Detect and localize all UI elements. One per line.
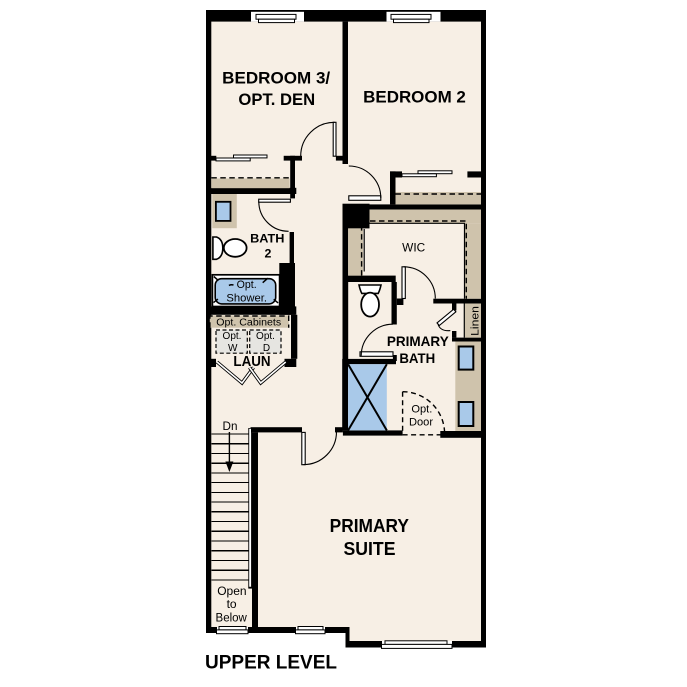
svg-text:Below: Below — [216, 613, 248, 625]
svg-text:Opt. Cabinets: Opt. Cabinets — [216, 317, 281, 328]
svg-text:PRIMARY: PRIMARY — [330, 516, 409, 536]
svg-text:LAUN: LAUN — [233, 354, 270, 370]
svg-text:to: to — [227, 597, 237, 611]
svg-text:Shower.: Shower. — [226, 293, 267, 305]
svg-text:BEDROOM 2: BEDROOM 2 — [363, 88, 466, 106]
svg-text:Open: Open — [217, 584, 246, 598]
svg-text:Opt.: Opt. — [237, 279, 257, 291]
svg-text:BEDROOM 3/: BEDROOM 3/ — [222, 69, 330, 87]
svg-text:Opt.: Opt. — [411, 403, 432, 415]
svg-text:Opt.: Opt. — [256, 331, 275, 342]
svg-text:2: 2 — [265, 247, 272, 261]
svg-text:Linen: Linen — [470, 306, 482, 336]
svg-text:BATH: BATH — [399, 351, 435, 366]
svg-text:Dn: Dn — [223, 420, 238, 433]
svg-text:OPT. DEN: OPT. DEN — [238, 91, 315, 109]
svg-text:D: D — [263, 343, 270, 354]
svg-text:Opt.: Opt. — [223, 331, 242, 342]
svg-text:Door: Door — [409, 417, 433, 429]
svg-text:W: W — [228, 343, 238, 354]
svg-text:WIC: WIC — [402, 240, 425, 254]
svg-text:UPPER LEVEL: UPPER LEVEL — [205, 651, 337, 673]
svg-text:PRIMARY: PRIMARY — [387, 334, 449, 349]
svg-text:BATH: BATH — [250, 232, 284, 246]
svg-text:SUITE: SUITE — [344, 539, 396, 559]
